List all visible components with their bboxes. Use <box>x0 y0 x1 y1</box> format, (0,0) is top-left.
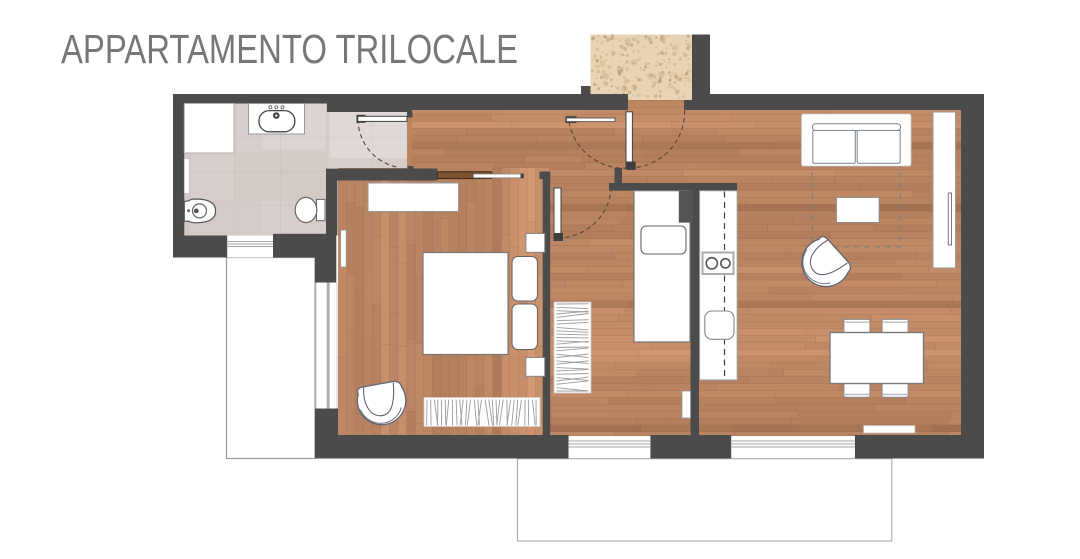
svg-text:APPARTAMENTO TRILOCALE: APPARTAMENTO TRILOCALE <box>61 26 518 72</box>
